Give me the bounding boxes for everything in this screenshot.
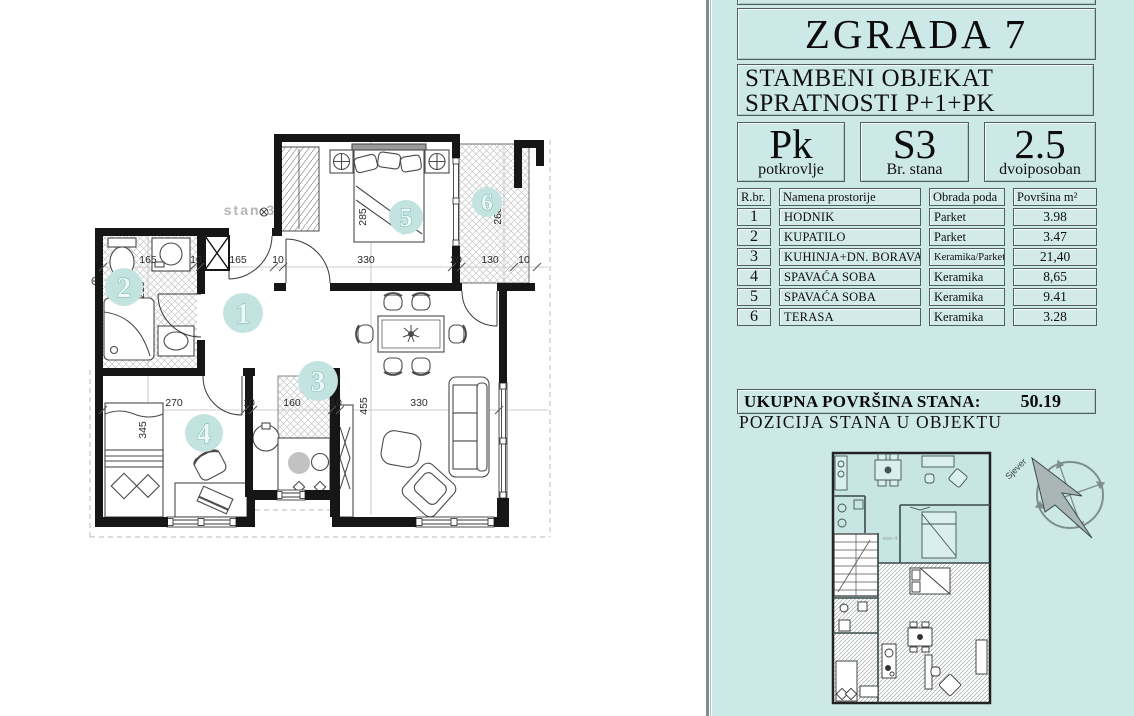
room-badge-3: 3 xyxy=(298,361,338,401)
table-row-name: HODNIK xyxy=(779,208,921,226)
table-row-num: 2 xyxy=(737,228,771,246)
table-row-num: 3 xyxy=(737,248,771,266)
table-row-floor: Parket xyxy=(929,228,1005,246)
shower xyxy=(104,298,154,360)
dim-330a: 330 xyxy=(357,254,375,266)
door-terrace xyxy=(462,291,497,326)
dining-table xyxy=(378,316,444,352)
page: 165 10 165 10 330 20 130 10 270 10 160 1… xyxy=(0,0,1134,716)
dim-20: 20 xyxy=(450,254,462,266)
svg-text:6: 6 xyxy=(481,190,493,215)
svg-text:3: 3 xyxy=(311,366,326,398)
building-title: ZGRADA 7 xyxy=(805,10,1028,58)
dim-270: 270 xyxy=(165,397,183,409)
pouf xyxy=(379,429,422,469)
col-header-povrsina: Površina m² xyxy=(1013,188,1097,206)
compass: Sjever xyxy=(1003,456,1104,538)
unit-number-box: S3 Br. stana xyxy=(860,122,969,182)
room-badge-2: 2 xyxy=(105,268,143,306)
svg-text:5: 5 xyxy=(400,203,413,232)
dim-165b: 165 xyxy=(229,254,247,266)
desk xyxy=(175,483,247,517)
building-title-box: ZGRADA 7 xyxy=(737,8,1096,60)
dim-130: 130 xyxy=(481,254,499,266)
dim-10b: 10 xyxy=(272,254,284,266)
table-row-num: 5 xyxy=(737,288,771,306)
panel-divider xyxy=(706,0,709,716)
room-badge-1: 1 xyxy=(223,293,263,333)
table-row-name: SPAVAĆA SOBA xyxy=(779,288,921,306)
table-row-floor: Keramika xyxy=(929,268,1005,286)
mini-building: stan 4 xyxy=(833,453,990,703)
window-bedroom4 xyxy=(167,517,236,527)
sink-bathroom xyxy=(158,326,194,356)
room-badge-6: 6 xyxy=(472,187,502,217)
total-area-box: UKUPNA POVRŠINA STANA: 50.19 xyxy=(737,389,1096,414)
nightstand-left xyxy=(330,150,353,173)
table-row-floor: Parket xyxy=(929,208,1005,226)
table-row-area: 8,65 xyxy=(1013,268,1097,286)
washing-machine xyxy=(152,238,190,271)
dim-160: 160 xyxy=(283,397,301,409)
col-header-obrada: Obrada poda xyxy=(929,188,1005,206)
table-row-area: 3.28 xyxy=(1013,308,1097,326)
top-partial-box xyxy=(737,0,1096,5)
window-terrace-wall xyxy=(453,158,459,246)
table-row-area: 21,40 xyxy=(1013,248,1097,266)
room-count: 2.5 xyxy=(1014,126,1065,162)
window-kitchen xyxy=(277,490,305,500)
table-row-name: TERASA xyxy=(779,308,921,326)
door-bedroom5 xyxy=(286,239,330,283)
room-badge-5: 5 xyxy=(389,200,423,234)
dim-455: 455 xyxy=(358,397,370,415)
table-row-area: 3.47 xyxy=(1013,228,1097,246)
table-row-name: SPAVAĆA SOBA xyxy=(779,268,921,286)
dim-165a: 165 xyxy=(139,254,157,266)
unit-label: Br. stana xyxy=(887,162,943,178)
floor-plan: 165 10 165 10 330 20 130 10 270 10 160 1… xyxy=(0,0,712,716)
table-row-name: KUHINJA+DN. BORAVAK xyxy=(779,248,921,266)
door-bedroom4 xyxy=(203,376,242,415)
room-count-box: 2.5 dvoiposoban xyxy=(984,122,1096,182)
window-living xyxy=(416,517,494,527)
shaft xyxy=(205,236,229,270)
room-count-label: dvoiposoban xyxy=(999,162,1081,178)
svg-text:4: 4 xyxy=(197,419,211,450)
table-row-name: KUPATILO xyxy=(779,228,921,246)
table-row-num: 1 xyxy=(737,208,771,226)
rooms-table: R.br. Namena prostorije Obrada poda Povr… xyxy=(737,188,1097,326)
compass-north-label: Sjever xyxy=(1003,456,1028,481)
unit-code: S3 xyxy=(893,126,936,162)
table-row-num: 6 xyxy=(737,308,771,326)
mini-stairs xyxy=(834,534,878,596)
table-row-floor: Keramika xyxy=(929,308,1005,326)
table-row-area: 3.98 xyxy=(1013,208,1097,226)
position-plan: stan 4 Sjever xyxy=(830,448,1130,716)
mini-unit-label: stan 4 xyxy=(883,536,898,542)
floor-box: Pk potkrovlje xyxy=(737,122,845,182)
table-row-num: 4 xyxy=(737,268,771,286)
dim-285: 285 xyxy=(357,208,369,226)
nightstand-right xyxy=(425,150,449,173)
subtitle-line-2: SPRATNOSTI P+1+PK xyxy=(745,91,1093,116)
unit-label: stan 3 xyxy=(224,202,276,218)
building-subtitle-box: STAMBENI OBJEKAT SPRATNOSTI P+1+PK xyxy=(737,64,1094,116)
desk-chair xyxy=(192,447,228,482)
bed-single xyxy=(105,403,163,517)
kitchen-sink xyxy=(253,423,279,451)
table-row-floor: Keramika xyxy=(929,288,1005,306)
panel-divider-highlight xyxy=(710,0,711,716)
subtitle-line-1: STAMBENI OBJEKAT xyxy=(745,66,1093,91)
total-area-value: 50.19 xyxy=(1021,391,1062,412)
svg-text:2: 2 xyxy=(117,273,131,304)
dim-345: 345 xyxy=(137,421,149,439)
svg-text:1: 1 xyxy=(236,298,251,330)
col-header-namena: Namena prostorije xyxy=(779,188,921,206)
info-panel: ZGRADA 7 STAMBENI OBJEKAT SPRATNOSTI P+1… xyxy=(712,0,1134,716)
total-area-label: UKUPNA POVRŠINA STANA: xyxy=(738,392,981,412)
position-label: POZICIJA STANA U OBJEKTU xyxy=(739,412,1002,433)
dim-10c: 10 xyxy=(518,254,530,266)
window-living-side xyxy=(499,383,507,498)
dim-10e: 10 xyxy=(330,397,342,409)
col-header-rbr: R.br. xyxy=(737,188,771,206)
room-badge-4: 4 xyxy=(185,414,223,452)
dim-10a: 10 xyxy=(190,254,202,266)
stove xyxy=(278,438,330,497)
floor-label: potkrovlje xyxy=(758,162,824,178)
dim-10d: 10 xyxy=(243,397,255,409)
sofa xyxy=(449,377,489,477)
floor-code: Pk xyxy=(769,126,812,162)
table-row-area: 9.41 xyxy=(1013,288,1097,306)
dim-330b: 330 xyxy=(410,397,428,409)
table-row-floor: Keramika/Parket xyxy=(929,248,1005,266)
